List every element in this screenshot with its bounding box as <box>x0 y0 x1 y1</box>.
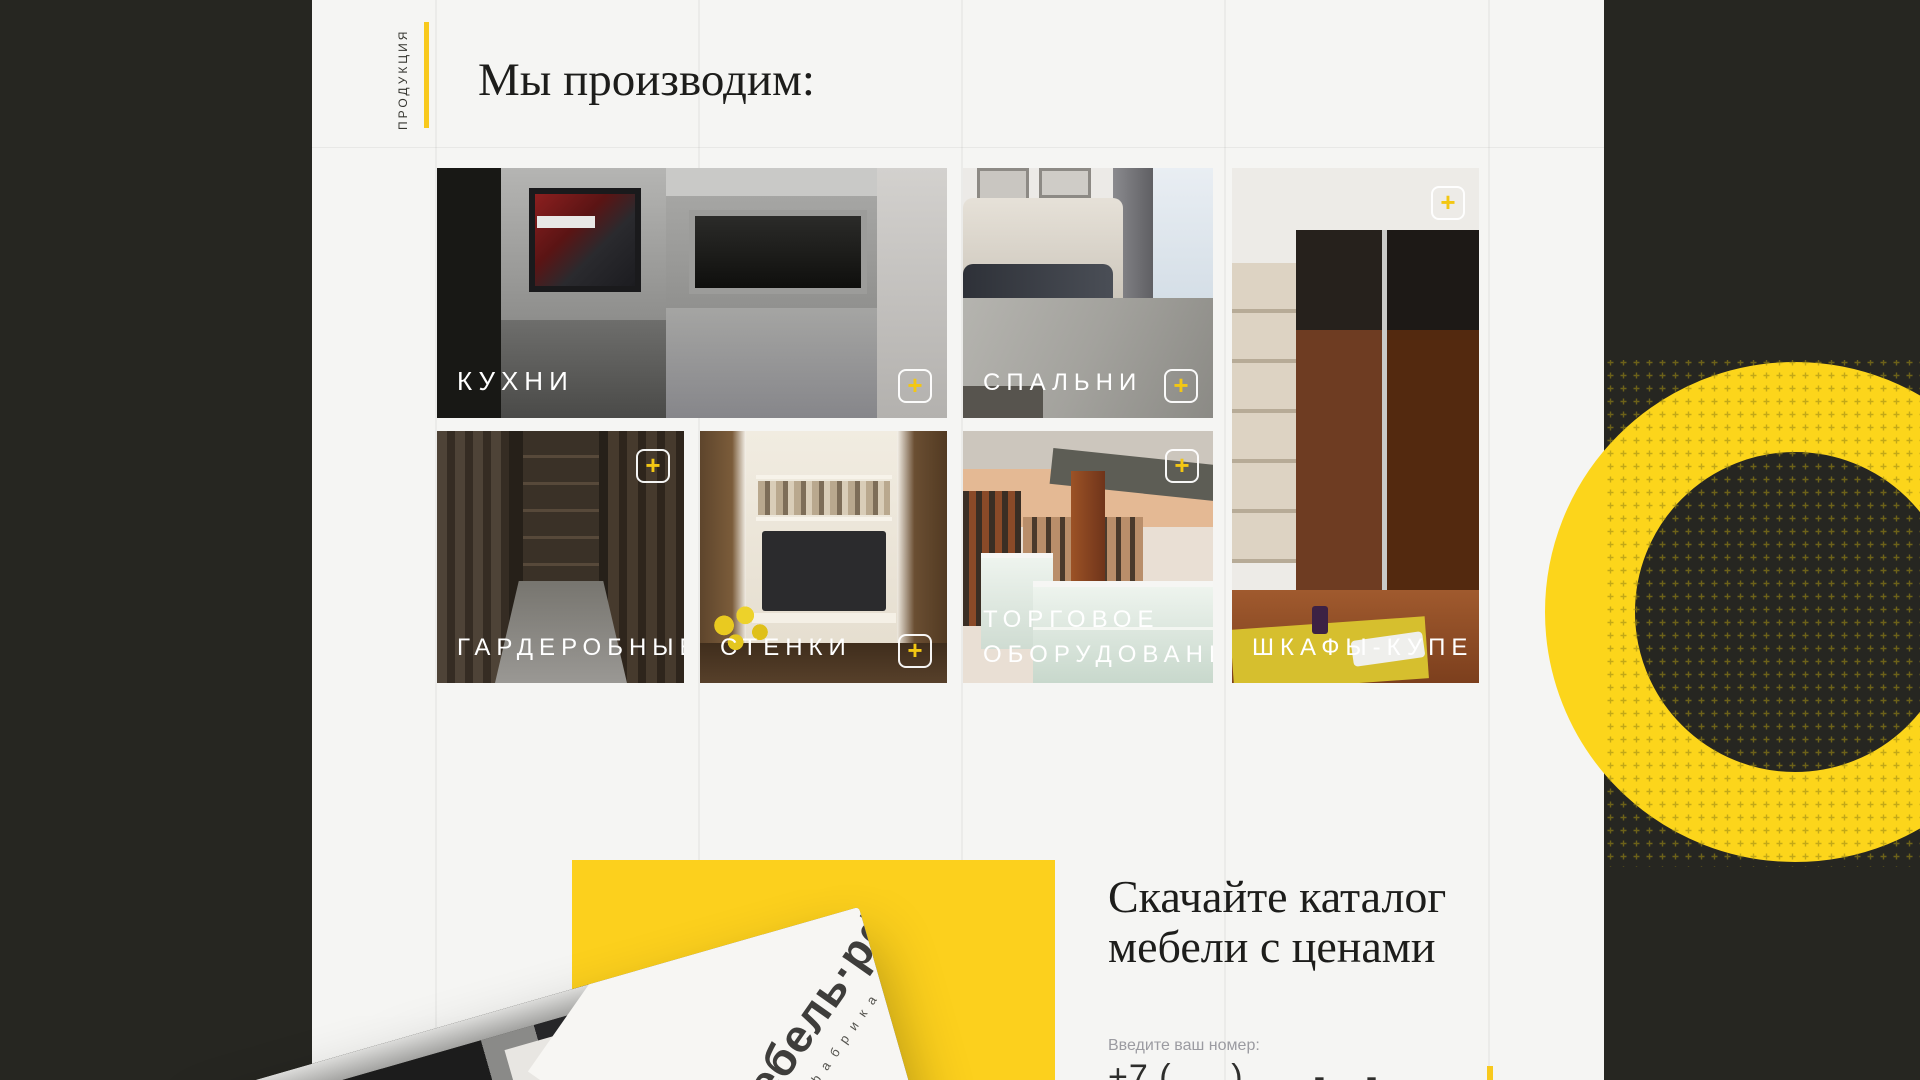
photo-fragment <box>537 216 595 228</box>
products-eyebrow: ПРОДУКЦИЯ <box>396 34 410 130</box>
plus-icon: + <box>1440 189 1455 215</box>
tile-expand-button[interactable]: + <box>898 369 932 403</box>
plus-icon: + <box>645 452 660 478</box>
tile-label: ШКАФЫ-КУПЕ <box>1252 631 1473 666</box>
plus-icon: + <box>1173 372 1188 398</box>
tile-label: КУХНИ <box>457 363 574 401</box>
tile-expand-button[interactable]: + <box>636 449 670 483</box>
photo-fragment <box>756 517 892 521</box>
accent-tick <box>1487 1066 1493 1080</box>
catalog-title: Скачайте каталог мебели с ценами <box>1108 872 1446 972</box>
tile-expand-button[interactable]: + <box>1431 186 1465 220</box>
tile-expand-button[interactable]: + <box>898 634 932 668</box>
product-tile-wall-units[interactable]: СТЕНКИ + <box>700 431 947 683</box>
photo-fragment <box>523 431 599 596</box>
plus-icon: + <box>907 372 922 398</box>
photo-fragment <box>897 431 947 643</box>
photo-fragment <box>1312 606 1328 634</box>
product-tile-dressing-rooms[interactable]: ГАРДЕРОБНЫЕ + <box>437 431 684 683</box>
grid-line <box>1488 0 1490 1080</box>
grid-line <box>312 147 1604 148</box>
donut-decoration <box>1500 330 1920 900</box>
product-tile-bedrooms[interactable]: СПАЛЬНИ + <box>963 168 1213 418</box>
tile-label: ГАРДЕРОБНЫЕ <box>457 631 684 666</box>
product-tile-retail-equipment[interactable]: ТОРГОВОЕ ОБОРУДОВАНИЕ + <box>963 431 1213 683</box>
photo-fragment <box>529 188 641 292</box>
tile-label: СТЕНКИ <box>720 631 852 666</box>
photo-fragment <box>689 210 867 294</box>
eyebrow-accent-rule <box>424 22 429 128</box>
photo-fragment <box>1232 263 1296 563</box>
left-frame-strip <box>0 0 312 1080</box>
phone-input[interactable]: +7 (___) ___-__-__ <box>1108 1058 1418 1080</box>
plus-icon: + <box>1174 452 1189 478</box>
page: ПРОДУКЦИЯ Мы производим: КУХНИ + СПАЛЬНИ… <box>0 0 1920 1080</box>
phone-input-label: Введите ваш номер: <box>1108 1037 1260 1055</box>
tile-expand-button[interactable]: + <box>1165 449 1199 483</box>
products-title: Мы производим: <box>478 56 815 105</box>
plus-icon: + <box>907 637 922 663</box>
photo-fragment <box>1296 230 1479 330</box>
tile-label: ТОРГОВОЕ ОБОРУДОВАНИЕ <box>983 603 1193 673</box>
tile-label: СПАЛЬНИ <box>983 366 1142 401</box>
catalog-title-line2: мебели с ценами <box>1108 922 1446 972</box>
product-tile-kitchens[interactable]: КУХНИ + <box>437 168 947 418</box>
product-tile-sliding-wardrobes[interactable]: ШКАФЫ-КУПЕ + <box>1232 168 1479 683</box>
photo-fragment <box>756 475 892 479</box>
catalog-title-line1: Скачайте каталог <box>1108 872 1446 922</box>
tile-expand-button[interactable]: + <box>1164 369 1198 403</box>
photo-fragment <box>762 531 886 611</box>
photo-fragment <box>1039 168 1091 198</box>
photo-fragment <box>758 481 890 515</box>
